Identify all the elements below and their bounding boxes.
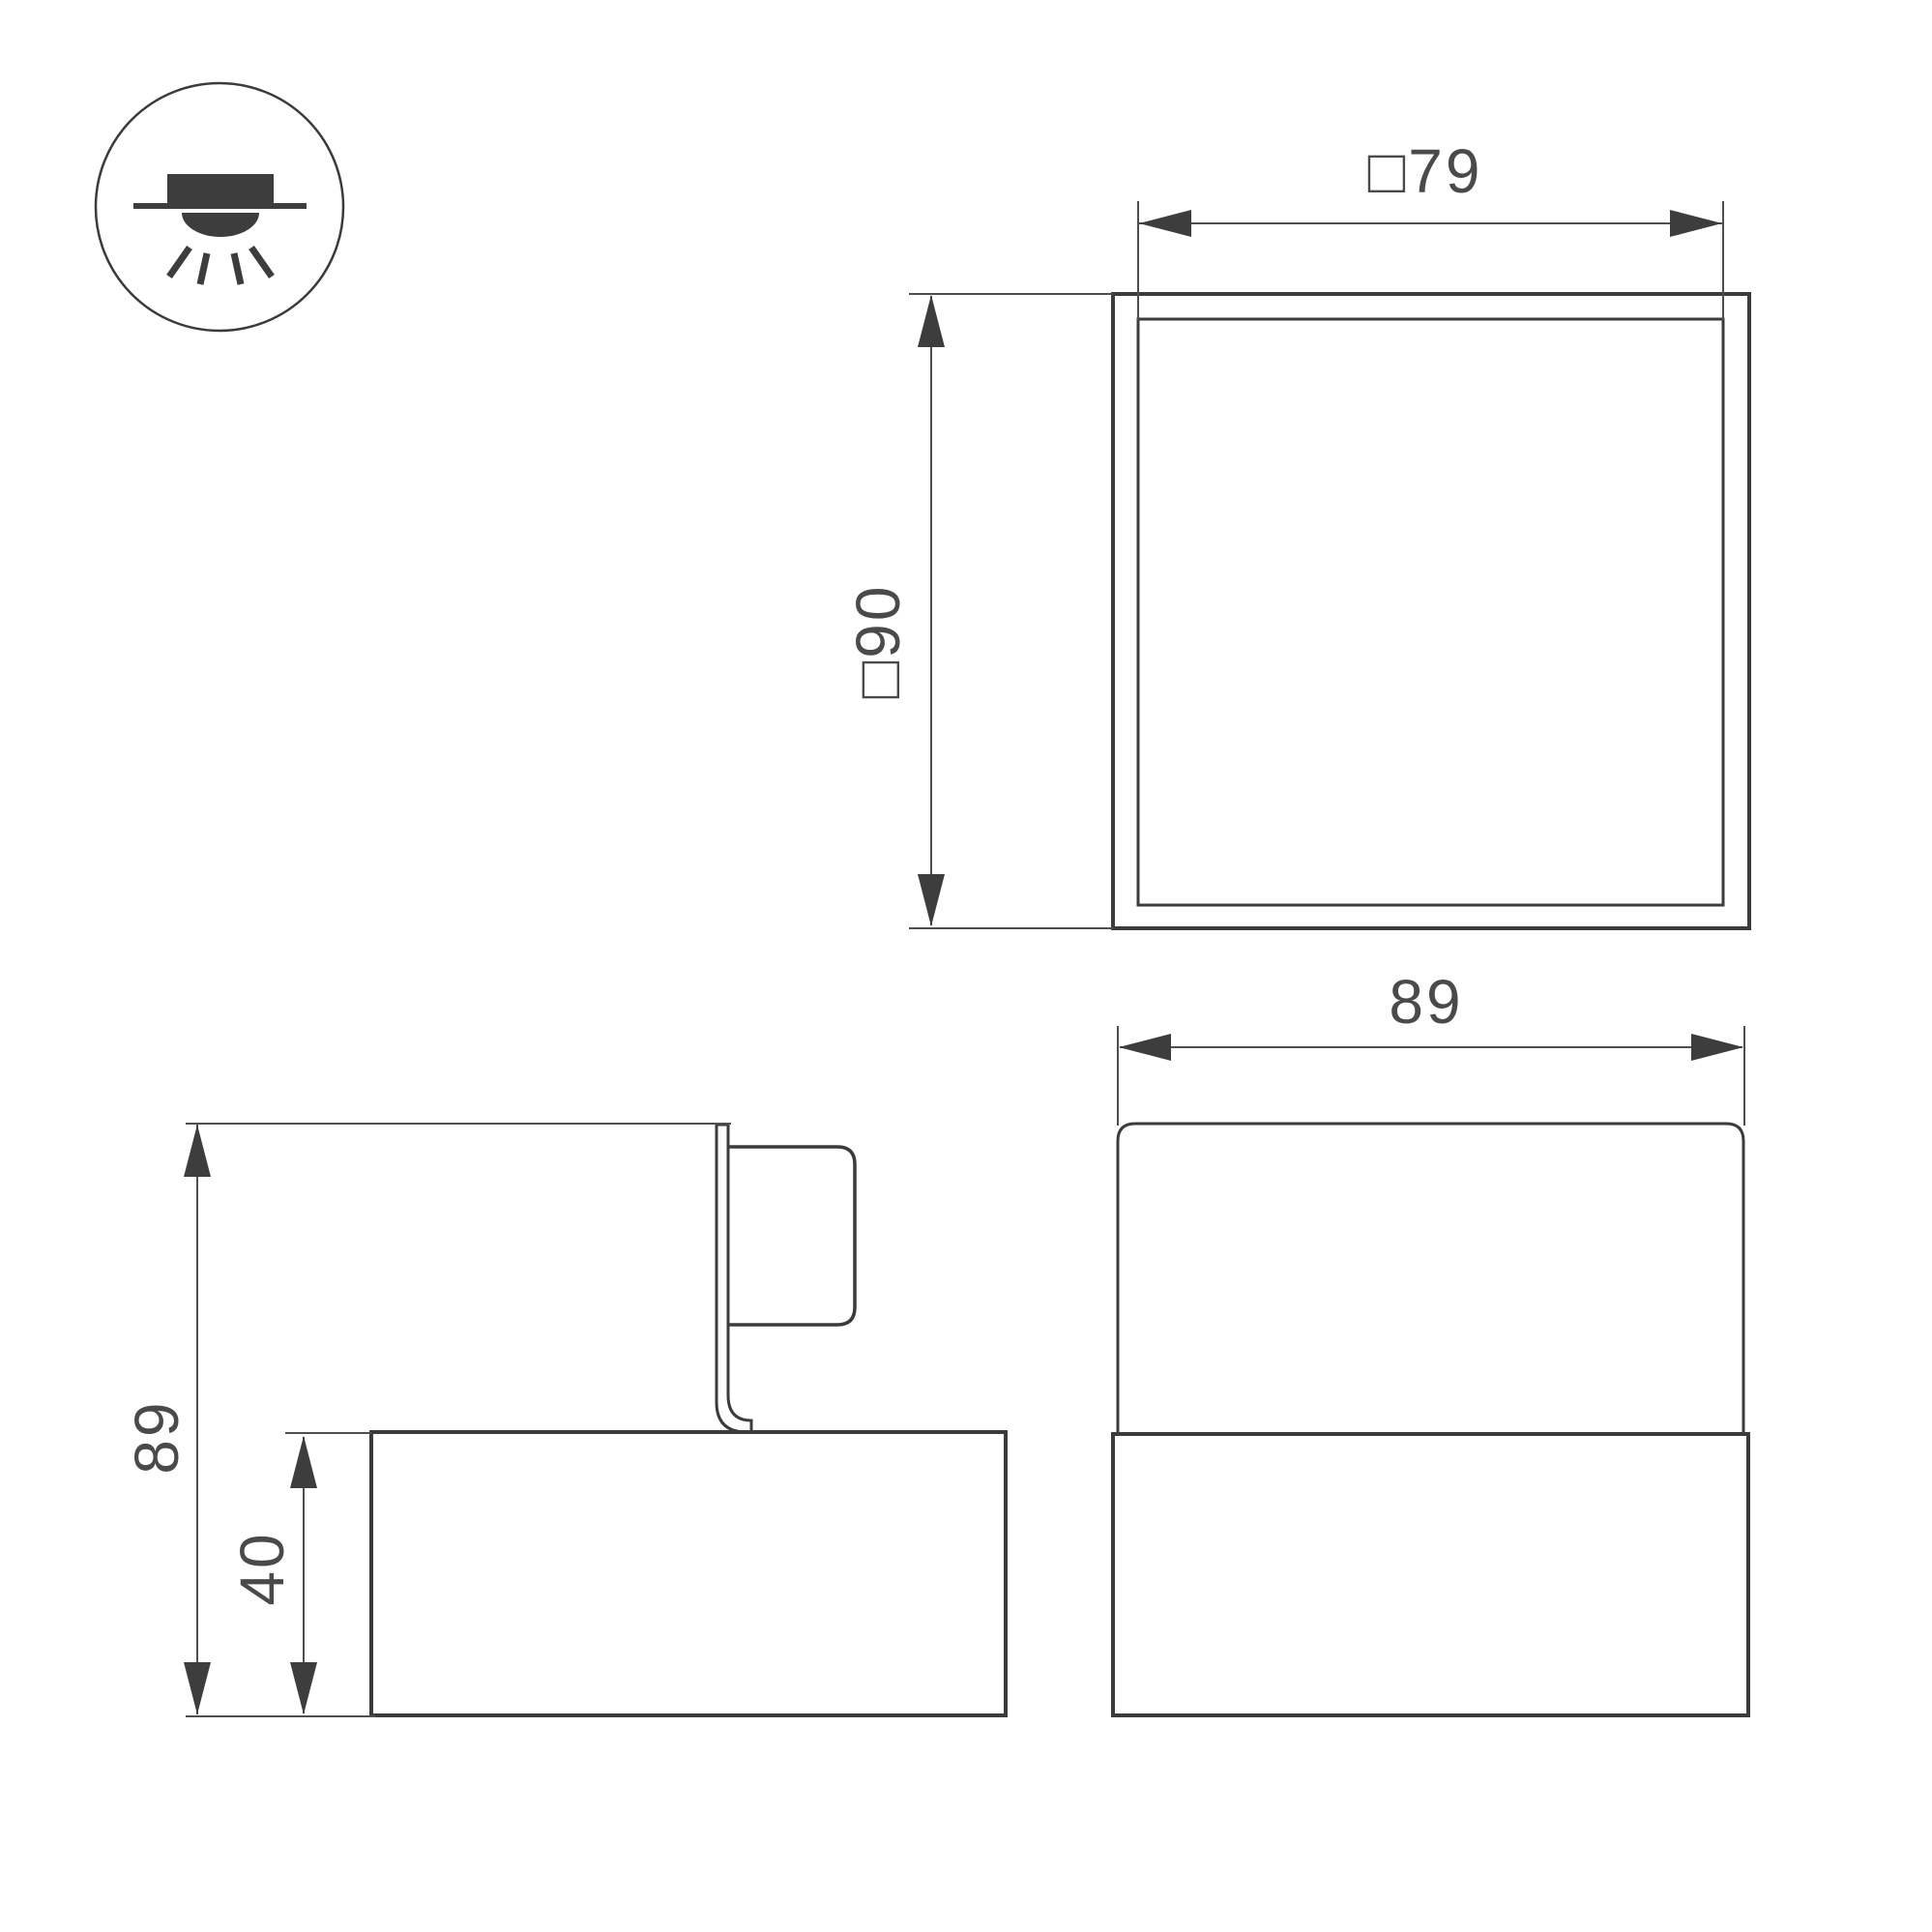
arrowhead-left [1119, 1034, 1171, 1061]
plan-height-dimension [909, 294, 1113, 928]
side-view [371, 1124, 1006, 1715]
front-width-dimension [1118, 1026, 1744, 1126]
plan-width-dimension [1138, 201, 1723, 320]
arrowhead-down [184, 1662, 211, 1714]
icon-light-ray [200, 253, 207, 284]
arrowhead-right [1691, 1034, 1743, 1061]
side-height-label: 89 [126, 1399, 188, 1474]
plan-width-label: □79 [1368, 140, 1483, 202]
plan-view [1113, 294, 1749, 928]
front-head [1118, 1124, 1743, 1434]
icon-light-ray [234, 253, 241, 284]
plan-outer-square [1113, 294, 1749, 928]
side-height-dimension [184, 1124, 731, 1716]
plan-height-label: □90 [847, 584, 909, 699]
arrowhead-up [290, 1436, 317, 1488]
arrowhead-up [918, 295, 945, 347]
front-body [1113, 1434, 1748, 1715]
icon-light-ray [169, 248, 190, 277]
arrowhead-up [184, 1125, 211, 1177]
side-body [371, 1432, 1006, 1715]
bracket-outer-edge [717, 1124, 746, 1432]
bracket-clip [728, 1147, 855, 1325]
arrowhead-down [918, 874, 945, 926]
icon-light-ray [251, 248, 272, 277]
side-base-height-label: 40 [231, 1531, 293, 1605]
front-view [1113, 1124, 1748, 1715]
icon-fixture-body [167, 174, 274, 204]
plan-inner-square [1138, 319, 1723, 905]
icon-light-dome [182, 213, 259, 237]
arrowhead-left [1139, 210, 1191, 237]
arrowhead-down [290, 1662, 317, 1714]
arrowhead-right [1670, 210, 1722, 237]
recessed-downlight-icon [96, 83, 343, 331]
side-base-height-dimension [285, 1433, 371, 1714]
drawing-svg [0, 0, 1932, 1932]
technical-drawing-page: □79 □90 89 40 89 [0, 0, 1932, 1932]
front-width-label: 89 [1389, 971, 1463, 1033]
bracket-inner-edge [728, 1124, 751, 1432]
